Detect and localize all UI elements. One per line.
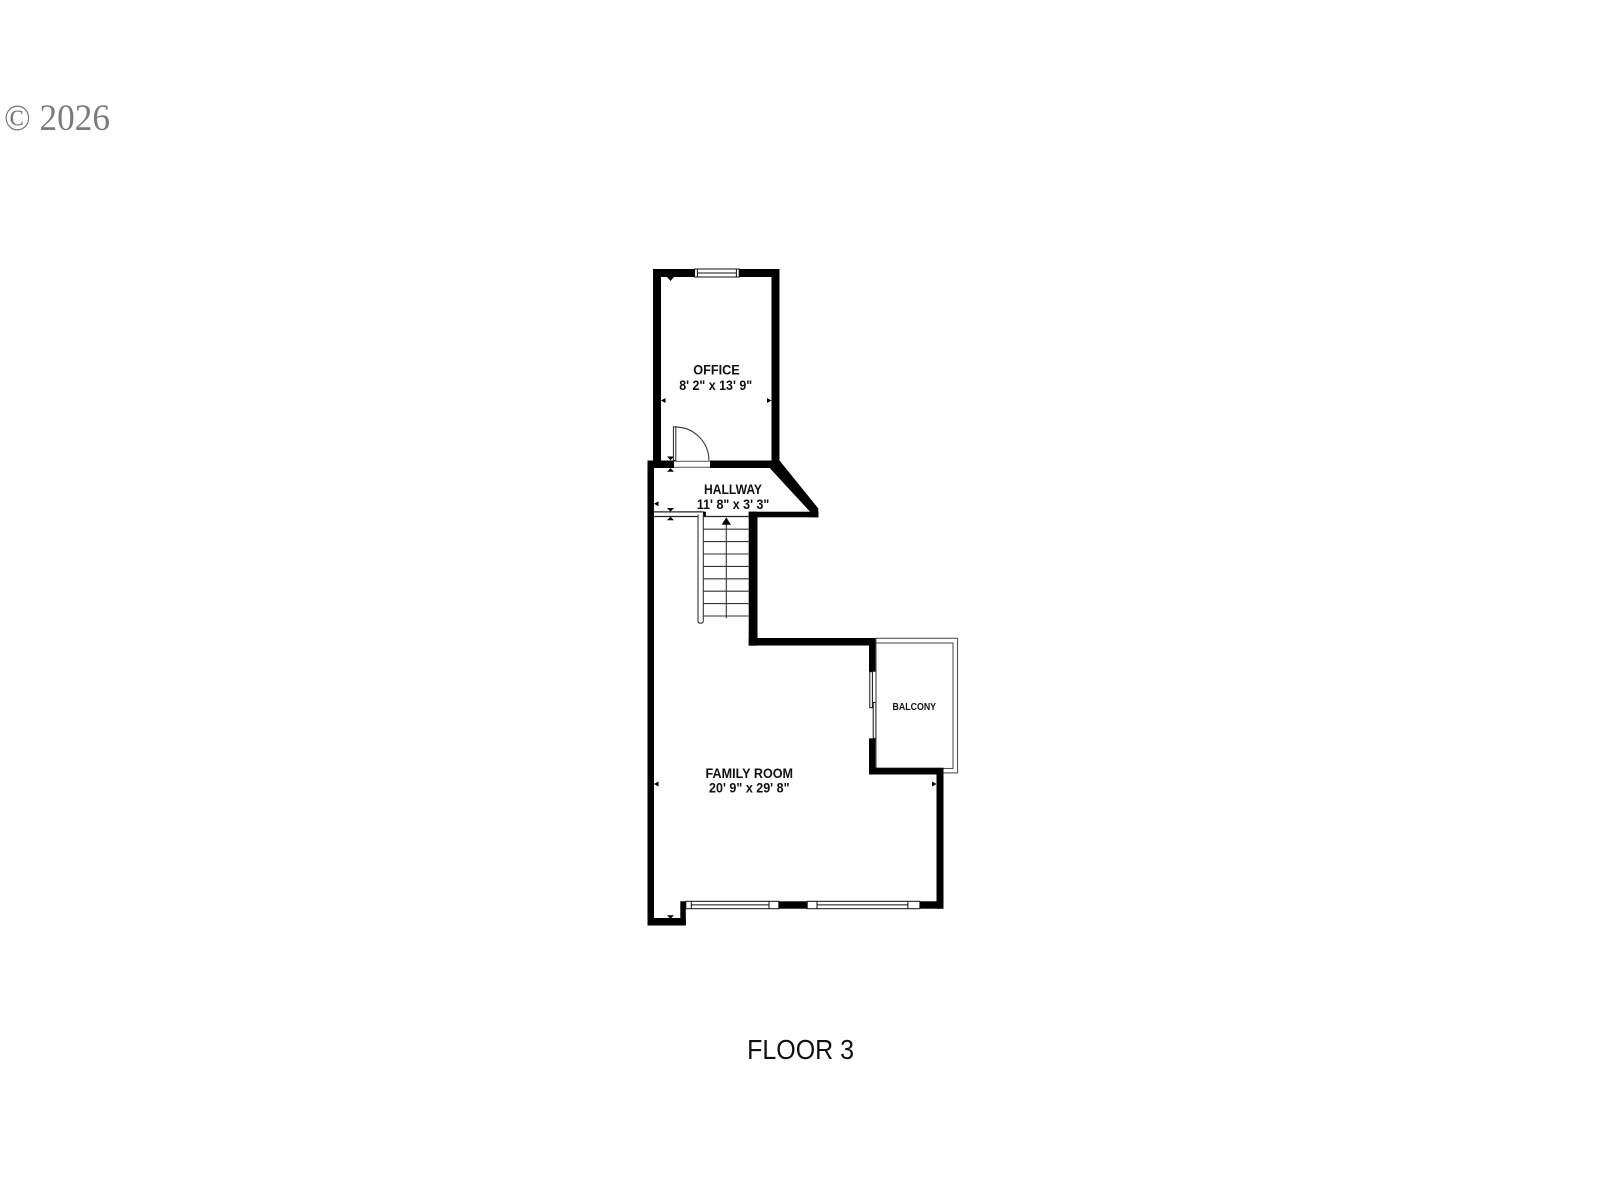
svg-text:20' 9" x 29' 8": 20' 9" x 29' 8" (709, 780, 790, 796)
svg-text:OFFICE: OFFICE (693, 362, 740, 377)
svg-text:HALLWAY: HALLWAY (704, 481, 763, 497)
svg-text:BALCONY: BALCONY (893, 701, 937, 713)
svg-text:FLOOR 3: FLOOR 3 (747, 1034, 854, 1065)
svg-text:8' 2" x 13' 9": 8' 2" x 13' 9" (679, 377, 752, 393)
svg-text:11' 8" x 3' 3": 11' 8" x 3' 3" (697, 496, 770, 512)
svg-text:© 2026: © 2026 (4, 98, 110, 139)
